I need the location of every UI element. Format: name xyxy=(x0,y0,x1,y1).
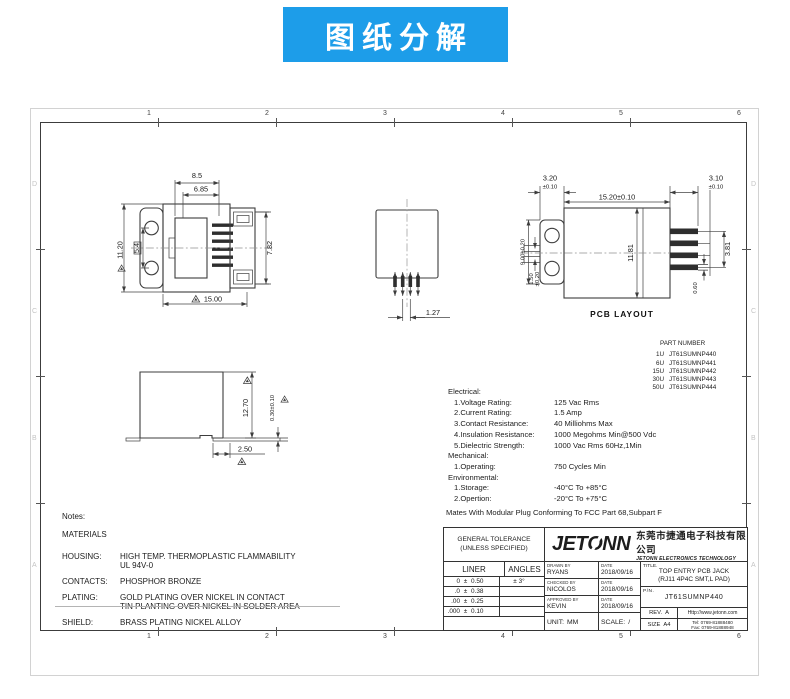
spec-block: Electrical: 1.Voltage Rating:125 Vac Rms… xyxy=(448,387,716,518)
frame-row-label: A xyxy=(751,562,756,569)
frame-tick xyxy=(394,118,395,127)
dim-label: 15.20±0.10 xyxy=(599,193,635,202)
dim-label: 1.27 xyxy=(426,308,440,317)
part-number-list: PART NUMBER 1UJT61SUMNP440 6UJT61SUMNP44… xyxy=(646,340,716,393)
frame-col-label: 3 xyxy=(383,633,387,640)
dim-label: 7.82 xyxy=(265,241,274,255)
fax: Fax: 0769-81888948 xyxy=(691,625,733,630)
size-row: SIZEA4 Tel: 0769-81888480 Fax: 0769-8188… xyxy=(641,619,747,630)
dim-label: 9.00±0.20 xyxy=(521,238,527,265)
frame-col-label: 2 xyxy=(265,110,269,117)
part-number-cell: P/N. JT61SUMNP440 xyxy=(641,587,747,608)
part-number-row: 6UJT61SUMNP441 xyxy=(646,360,716,368)
company-name-cn: 东莞市捷通电子科技有限公司 xyxy=(636,528,747,556)
frame-tick xyxy=(394,627,395,636)
top-view-drawing: 1.27 xyxy=(358,195,473,335)
tolerance-row: .00±0.25 xyxy=(444,597,544,607)
spec-footer: Mates With Modular Plug Conforming To FC… xyxy=(446,508,716,519)
notes-block: Notes: MATERIALS HOUSING: HIGH TEMP. THE… xyxy=(62,512,362,634)
notes-row: SHIELD: BRASS PLATING NICKEL ALLOY xyxy=(62,618,362,627)
spec-row: 5.Dielectric Strength:1000 Vac Rms 60Hz,… xyxy=(448,441,716,452)
company-logo-area: JETONN 东莞市捷通电子科技有限公司 JETONN ELECTRONICS … xyxy=(545,528,747,561)
frame-tick xyxy=(630,118,631,127)
frame-col-label: 1 xyxy=(147,633,151,640)
spec-row: 2.Opertion:-20°C To +75°C xyxy=(448,494,716,505)
frame-row-label: B xyxy=(32,435,37,442)
dim-label: 6.85 xyxy=(194,185,208,194)
frame-row-label: B xyxy=(751,435,756,442)
pins xyxy=(393,272,420,296)
jetonn-logo: JETONN xyxy=(552,533,630,556)
checked-by-row: CHECKED BYNICOLOS DATE2018/09/16 xyxy=(545,579,640,596)
dim-tol-label: ±0.10 xyxy=(709,185,724,191)
dim-label: 5.4 xyxy=(132,243,141,253)
frame-col-label: 5 xyxy=(619,110,623,117)
drawn-by-row: DRAWN BYRYANS DATE2018/09/16 xyxy=(545,562,640,579)
dim-label: 3.81 xyxy=(723,242,732,256)
liner-header: LINER xyxy=(444,562,505,576)
website: Http://www.jetonn.com xyxy=(688,611,738,616)
frame-row-label: D xyxy=(32,181,37,188)
frame-row-label: C xyxy=(751,308,756,315)
spec-heading: Environmental: xyxy=(448,473,716,484)
drawing-sheet-page: 图纸分解 1 2 3 4 5 6 1 2 3 4 5 6 D C B A D C… xyxy=(0,0,790,699)
notes-title: Notes: xyxy=(62,512,362,521)
tolerance-table: LINER ANGLES 0±0.50± 3° .0±0.38 .00±0.25… xyxy=(444,562,545,630)
frame-col-label: 5 xyxy=(619,633,623,640)
unit-scale-row: UNIT:MM SCALE:/ xyxy=(545,613,640,630)
spec-row: 1.Operating:750 Cycles Min xyxy=(448,462,716,473)
frame-tick xyxy=(512,118,513,127)
frame-tick xyxy=(36,249,45,250)
notes-row: HOUSING: HIGH TEMP. THERMOPLASTIC FLAMMA… xyxy=(62,552,362,570)
dim-label: 8.5 xyxy=(192,171,202,180)
dim-label: 2.50 xyxy=(238,445,252,454)
dim-label: 11.81 xyxy=(626,244,635,262)
front-view-drawing: 8.5 6.85 11.20 5.4 7.82 15.00 xyxy=(115,166,275,312)
dim-label: 11.20 xyxy=(116,241,125,259)
spec-heading: Electrical: xyxy=(448,387,716,398)
spec-row: 2.Current Rating:1.5 Amp xyxy=(448,408,716,419)
frame-col-label: 3 xyxy=(383,110,387,117)
title-block: GENERAL TOLERANCE (UNLESS SPECIFIED) JET… xyxy=(443,527,748,631)
pcb-layout-caption: PCB LAYOUT xyxy=(590,309,654,319)
side-view-drawing: 12.70 0.30±0.10 2.50 xyxy=(100,350,310,475)
spec-row: 1.Storage:-40°C To +85°C xyxy=(448,483,716,494)
banner-title: 图纸分解 xyxy=(318,13,473,57)
general-tolerance-heading: GENERAL TOLERANCE (UNLESS SPECIFIED) xyxy=(444,528,545,561)
frame-col-label: 6 xyxy=(737,110,741,117)
frame-tick xyxy=(742,503,751,504)
drawing-title: TITLE. TOP ENTRY PCB JACK (RJ11 4P4C SMT… xyxy=(641,562,747,587)
frame-tick xyxy=(276,118,277,127)
dim-label: 12.70 xyxy=(241,399,250,417)
dim-tol-label: ±0.20 xyxy=(535,271,541,286)
tolerance-row: 0±0.50± 3° xyxy=(444,577,544,587)
notes-row: CONTACTS: PHOSPHOR BRONZE xyxy=(62,577,362,586)
dim-tol-label: ±0.10 xyxy=(543,185,558,191)
frame-col-label: 2 xyxy=(265,633,269,640)
signature-table: DRAWN BYRYANS DATE2018/09/16 CHECKED BYN… xyxy=(545,562,641,630)
spec-row: 3.Contact Resistance:40 Milliohms Max xyxy=(448,419,716,430)
angles-header: ANGLES xyxy=(505,562,544,576)
dim-label: 0.30±0.10 xyxy=(270,394,276,421)
rev-row: REV.A Http://www.jetonn.com xyxy=(641,608,747,619)
notes-materials-heading: MATERIALS xyxy=(62,530,362,539)
frame-row-label: D xyxy=(751,181,756,188)
part-number-row: 15UJT61SUMNP442 xyxy=(646,368,716,376)
company-name-en: JETONN ELECTRONICS TECHNOLOGY xyxy=(636,556,747,562)
dim-label: 0.60 xyxy=(693,282,699,294)
spec-row: 4.Insulation Resistance:1000 Megohms Min… xyxy=(448,430,716,441)
dim-label: 3.10 xyxy=(709,174,723,183)
frame-col-label: 4 xyxy=(501,110,505,117)
frame-tick xyxy=(36,376,45,377)
frame-tick xyxy=(742,376,751,377)
title-pn-table: TITLE. TOP ENTRY PCB JACK (RJ11 4P4C SMT… xyxy=(641,562,747,630)
frame-row-label: A xyxy=(32,562,37,569)
notes-row: PLATING: GOLD PLATING OVER NICKEL IN CON… xyxy=(62,593,362,611)
dim-label: 15.00 xyxy=(204,295,222,304)
part-number-title: PART NUMBER xyxy=(660,340,716,348)
approved-by-row: APPROVED BYKEVIN DATE2018/09/16 xyxy=(545,596,640,613)
banner: 图纸分解 xyxy=(283,7,508,62)
frame-tick xyxy=(158,118,159,127)
pcb-layout-drawing: 3.20 ±0.10 15.20±0.10 3.10 ±0.10 9.00±0.… xyxy=(520,172,748,322)
frame-col-label: 4 xyxy=(501,633,505,640)
spec-heading: Mechanical: xyxy=(448,451,716,462)
frame-row-label: C xyxy=(32,308,37,315)
tolerance-row: .0±0.38 xyxy=(444,587,544,597)
dim-label: 3.20 xyxy=(543,174,557,183)
part-number-row: 30UJT61SUMNP443 xyxy=(646,376,716,384)
tolerance-row: .000±0.10 xyxy=(444,607,544,617)
spec-row: 1.Voltage Rating:125 Vac Rms xyxy=(448,398,716,409)
notes-divider xyxy=(55,606,340,607)
frame-col-label: 1 xyxy=(147,110,151,117)
part-number-row: 1UJT61SUMNP440 xyxy=(646,351,716,359)
frame-col-label: 6 xyxy=(737,633,741,640)
frame-tick xyxy=(36,503,45,504)
